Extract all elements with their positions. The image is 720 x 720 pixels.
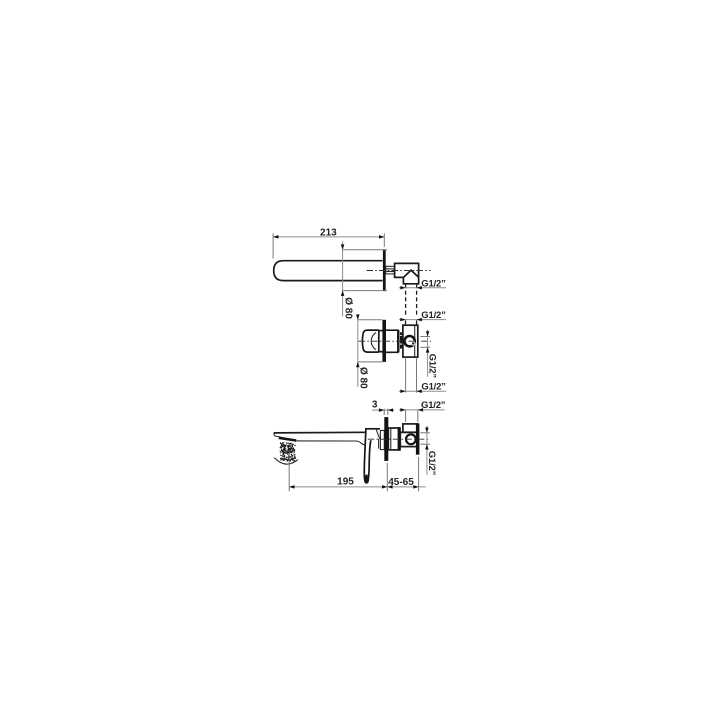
svg-text:G1/2”: G1/2” bbox=[421, 382, 446, 393]
svg-text:195: 195 bbox=[337, 477, 354, 488]
svg-text:G1/2”: G1/2” bbox=[421, 400, 446, 411]
svg-text:Ø 80: Ø 80 bbox=[342, 297, 353, 319]
svg-text:G1/2”: G1/2” bbox=[421, 278, 446, 289]
svg-text:3: 3 bbox=[372, 399, 378, 410]
svg-text:Ø 80: Ø 80 bbox=[358, 367, 369, 389]
svg-text:G1/2”: G1/2” bbox=[426, 451, 437, 476]
svg-text:G1/2”: G1/2” bbox=[421, 310, 446, 321]
svg-text:G1/2”: G1/2” bbox=[426, 354, 437, 379]
